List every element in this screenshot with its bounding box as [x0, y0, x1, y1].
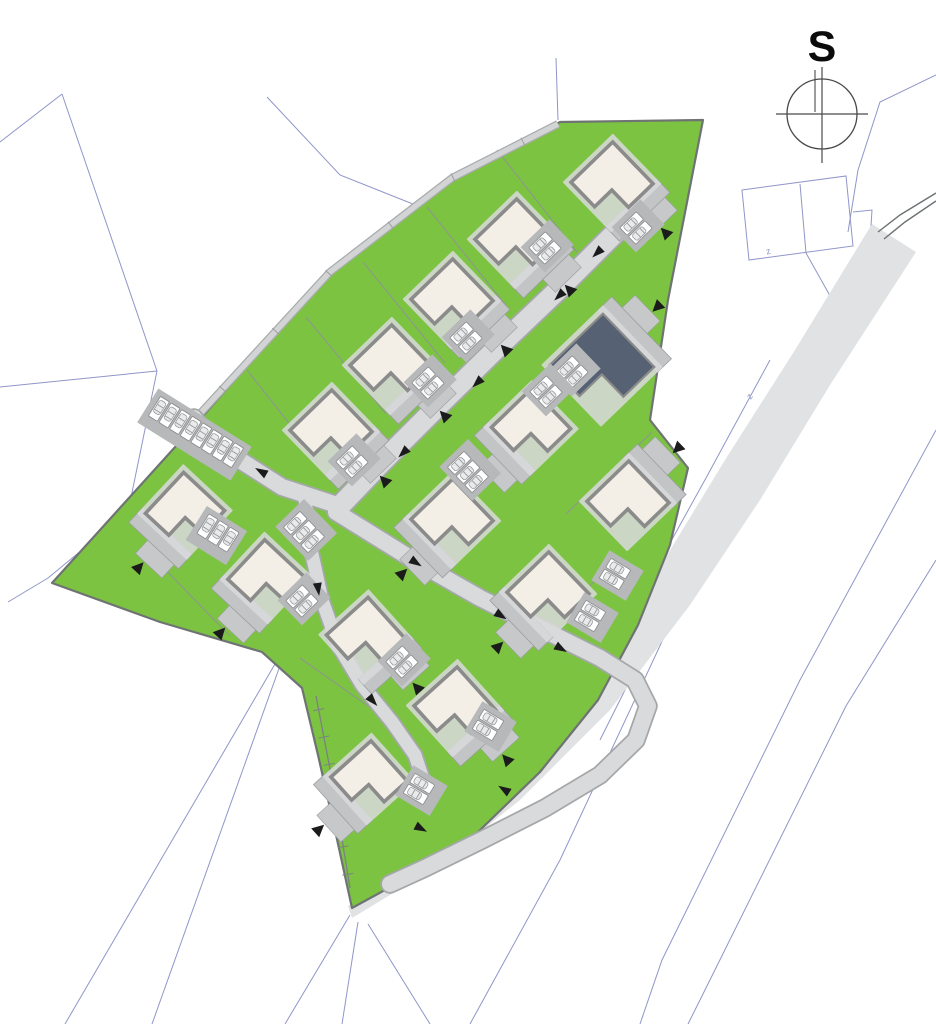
parcel-label: z	[765, 246, 772, 257]
parcel-label: z	[744, 391, 755, 401]
cadastral-parcel	[742, 176, 853, 260]
compass-north-indicator: S	[776, 23, 868, 163]
cadastral-line	[267, 97, 428, 210]
cadastral-line	[800, 184, 806, 253]
labels-layer: zz	[744, 246, 772, 401]
cadastral-line	[368, 924, 430, 1024]
existing-road-edge	[878, 193, 936, 232]
cadastral-line	[640, 430, 936, 1024]
cadastral-line	[62, 94, 157, 371]
cadastral-line	[342, 922, 358, 1024]
cadastral-line	[0, 371, 157, 387]
cadastral-line	[848, 75, 936, 232]
site-plan-drawing: S zz	[0, 0, 936, 1024]
cadastral-line	[8, 578, 48, 602]
cadastral-line	[556, 58, 558, 120]
cadastral-line	[65, 628, 296, 1024]
existing-road-edge	[884, 201, 936, 239]
cadastral-line	[0, 94, 62, 142]
site-plan-page: S zz	[0, 0, 936, 1024]
cadastral-line	[688, 560, 936, 1024]
cadastral-line	[285, 915, 350, 1024]
compass-label: S	[808, 23, 837, 71]
